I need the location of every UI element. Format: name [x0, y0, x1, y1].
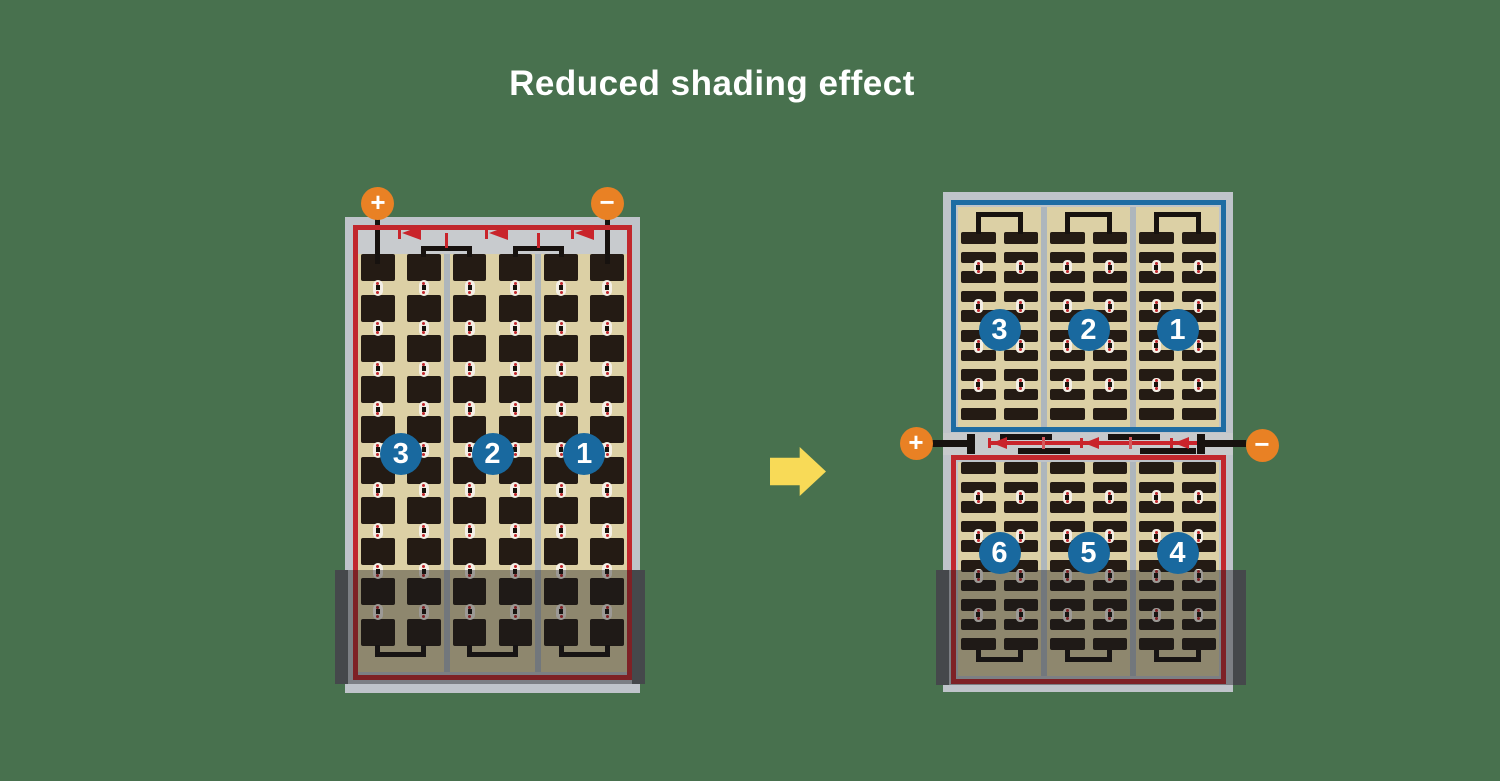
terminal-wire — [1204, 440, 1246, 447]
bypass-diode-icon — [398, 226, 422, 240]
diode-tap — [1042, 437, 1045, 449]
substring-badge: 1 — [1157, 309, 1199, 351]
shade-cap — [335, 570, 348, 684]
shade-cap — [632, 570, 645, 684]
junction-bar — [1197, 434, 1205, 454]
bypass-diode-icon — [988, 437, 1008, 449]
diode-tap — [537, 233, 540, 248]
plus-terminal: + — [361, 187, 394, 220]
minus-terminal: − — [1246, 429, 1279, 462]
substring-badge: 3 — [979, 309, 1021, 351]
substring-badge: 3 — [380, 433, 422, 475]
bypass-diode-icon — [1080, 437, 1100, 449]
substring-badge: 6 — [979, 532, 1021, 574]
substring-badge: 1 — [563, 433, 605, 475]
bypass-diode-icon — [1170, 437, 1190, 449]
shade-overlay — [936, 570, 1246, 685]
diagram-canvas: Reduced shading effect 321+−362514+− — [0, 0, 1500, 781]
shade-cap — [1233, 570, 1246, 685]
minus-terminal: − — [591, 187, 624, 220]
substring-badge: 5 — [1068, 532, 1110, 574]
page-title: Reduced shading effect — [12, 64, 1412, 104]
substring-badge: 2 — [1068, 309, 1110, 351]
shade-overlay — [335, 570, 645, 684]
substring-badge: 4 — [1157, 532, 1199, 574]
terminal-wire — [930, 440, 970, 447]
junction-bar — [967, 434, 975, 454]
diode-tap — [1129, 437, 1132, 449]
diode-tap — [445, 233, 448, 248]
substring-badge: 2 — [472, 433, 514, 475]
bypass-diode-icon — [485, 226, 509, 240]
transform-arrow-icon — [770, 447, 826, 496]
bypass-diode-icon — [571, 226, 595, 240]
junction-tab — [1108, 434, 1160, 440]
shade-cap — [936, 570, 949, 685]
plus-terminal: + — [900, 427, 933, 460]
